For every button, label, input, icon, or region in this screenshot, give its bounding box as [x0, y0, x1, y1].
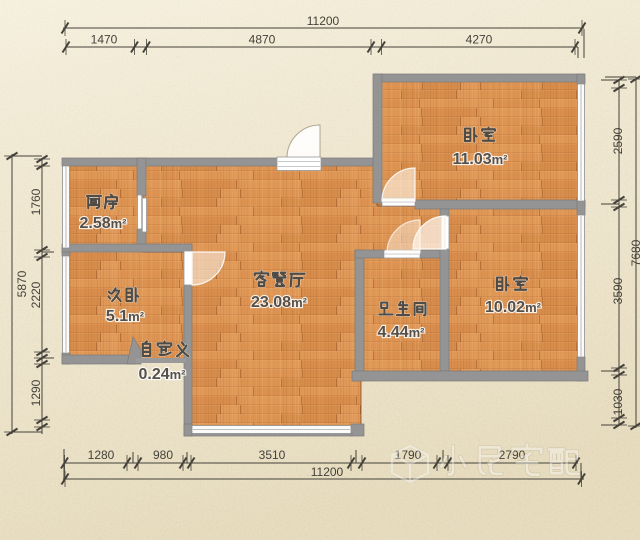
svg-text:11200: 11200 [311, 465, 344, 479]
svg-text:2220: 2220 [29, 281, 43, 308]
svg-text:1280: 1280 [88, 448, 115, 462]
svg-text:10.02m²: 10.02m² [485, 299, 542, 316]
svg-text:1470: 1470 [91, 33, 118, 47]
svg-text:4.44m²: 4.44m² [377, 324, 425, 341]
svg-text:2590: 2590 [611, 127, 625, 154]
svg-text:4270: 4270 [466, 33, 493, 47]
svg-text:11.03m²: 11.03m² [452, 151, 508, 168]
svg-text:1030: 1030 [611, 388, 625, 415]
svg-text:0.24m²: 0.24m² [138, 366, 186, 383]
svg-text:2.58m²: 2.58m² [79, 215, 127, 232]
svg-text:5.1m²: 5.1m² [106, 308, 145, 325]
svg-text:1290: 1290 [29, 379, 43, 406]
svg-text:4870: 4870 [249, 33, 276, 47]
svg-text:1760: 1760 [29, 188, 43, 215]
svg-text:23.08m²: 23.08m² [251, 294, 308, 311]
svg-text:3510: 3510 [259, 448, 286, 462]
svg-text:11200: 11200 [307, 14, 340, 28]
svg-text:7680: 7680 [629, 239, 640, 266]
svg-text:980: 980 [153, 448, 173, 462]
svg-text:5870: 5870 [15, 270, 29, 297]
svg-text:3590: 3590 [611, 277, 625, 304]
